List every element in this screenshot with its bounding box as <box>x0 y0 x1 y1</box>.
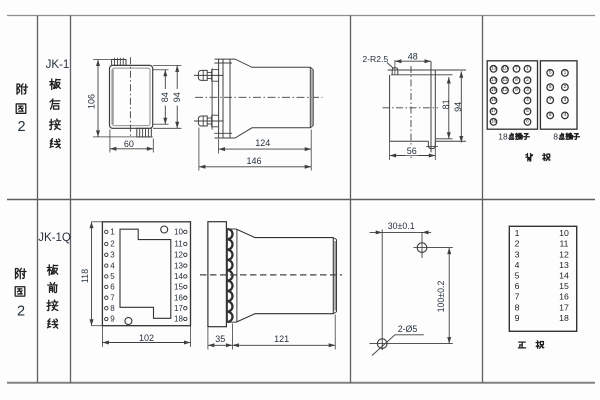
svg-text:13: 13 <box>174 261 183 270</box>
svg-text:9: 9 <box>110 315 115 324</box>
svg-text:10: 10 <box>559 228 569 238</box>
svg-text:5: 5 <box>549 70 552 76</box>
svg-text:94: 94 <box>172 92 182 102</box>
svg-text:9: 9 <box>515 313 520 323</box>
svg-text:7: 7 <box>549 97 552 103</box>
svg-text:15: 15 <box>491 87 497 93</box>
svg-text:84: 84 <box>160 92 170 102</box>
svg-text:4: 4 <box>110 261 115 270</box>
svg-text:118: 118 <box>80 269 90 283</box>
svg-text:35: 35 <box>215 334 225 344</box>
svg-text:5: 5 <box>515 271 520 281</box>
svg-text:13: 13 <box>491 66 497 72</box>
svg-text:14: 14 <box>174 272 183 281</box>
svg-text:100±0.2: 100±0.2 <box>436 281 446 313</box>
svg-text:15: 15 <box>174 283 183 292</box>
svg-text:10: 10 <box>174 228 183 237</box>
svg-text:10: 10 <box>502 66 508 72</box>
svg-text:6: 6 <box>110 283 115 292</box>
svg-text:1: 1 <box>526 66 529 72</box>
svg-text:7: 7 <box>110 293 115 302</box>
svg-text:94: 94 <box>453 102 463 112</box>
svg-text:JK-1: JK-1 <box>46 59 70 71</box>
svg-text:6: 6 <box>515 281 520 291</box>
svg-text:JK-1Q: JK-1Q <box>38 232 71 244</box>
svg-text:124: 124 <box>255 138 270 148</box>
svg-text:2: 2 <box>110 240 115 249</box>
svg-text:2: 2 <box>17 304 25 320</box>
svg-text:6: 6 <box>549 84 552 90</box>
svg-text:4: 4 <box>564 112 567 118</box>
svg-text:16: 16 <box>491 97 497 103</box>
svg-text:30±0.1: 30±0.1 <box>388 221 415 231</box>
svg-text:17: 17 <box>174 304 183 313</box>
svg-text:18: 18 <box>174 315 183 324</box>
svg-text:9: 9 <box>515 87 518 93</box>
svg-text:12: 12 <box>174 251 183 260</box>
svg-text:5: 5 <box>110 272 115 281</box>
svg-text:18: 18 <box>498 132 508 142</box>
svg-text:4: 4 <box>526 97 529 103</box>
svg-text:1: 1 <box>515 228 520 238</box>
svg-text:121: 121 <box>274 334 289 344</box>
svg-text:8: 8 <box>515 77 518 83</box>
svg-text:3: 3 <box>526 87 529 93</box>
svg-text:146: 146 <box>246 156 261 166</box>
svg-text:60: 60 <box>124 139 134 149</box>
svg-text:48: 48 <box>408 51 418 61</box>
svg-text:16: 16 <box>559 292 569 302</box>
svg-text:4: 4 <box>515 260 520 270</box>
svg-text:106: 106 <box>87 94 97 109</box>
svg-text:12: 12 <box>502 87 508 93</box>
svg-text:12: 12 <box>559 250 569 260</box>
svg-text:18: 18 <box>559 313 569 323</box>
svg-text:8: 8 <box>553 132 558 142</box>
svg-text:11: 11 <box>559 239 568 249</box>
svg-text:7: 7 <box>515 292 520 302</box>
svg-text:2-R2.5: 2-R2.5 <box>362 54 388 64</box>
svg-text:3: 3 <box>515 250 520 260</box>
svg-text:2: 2 <box>526 77 529 83</box>
svg-text:5: 5 <box>526 108 529 114</box>
svg-text:2: 2 <box>564 84 567 90</box>
svg-text:13: 13 <box>559 260 569 270</box>
svg-text:14: 14 <box>559 271 569 281</box>
svg-text:18: 18 <box>491 119 497 125</box>
svg-text:1: 1 <box>110 228 115 237</box>
svg-text:17: 17 <box>491 108 497 114</box>
svg-text:11: 11 <box>503 77 508 83</box>
svg-text:56: 56 <box>407 146 417 156</box>
svg-text:1: 1 <box>564 70 567 76</box>
svg-text:3: 3 <box>110 251 115 260</box>
svg-text:17: 17 <box>559 303 569 313</box>
svg-text:3: 3 <box>564 97 567 103</box>
svg-text:7: 7 <box>515 66 518 72</box>
svg-text:16: 16 <box>174 293 183 302</box>
svg-text:8: 8 <box>110 304 115 313</box>
svg-text:2: 2 <box>515 239 520 249</box>
svg-text:15: 15 <box>559 281 569 291</box>
svg-text:11: 11 <box>174 240 183 249</box>
svg-text:2: 2 <box>17 119 25 135</box>
svg-text:14: 14 <box>491 77 497 83</box>
svg-text:102: 102 <box>139 333 154 343</box>
svg-text:6: 6 <box>526 119 529 125</box>
svg-text:8: 8 <box>515 303 520 313</box>
svg-text:81: 81 <box>441 99 451 109</box>
svg-text:8: 8 <box>549 112 552 118</box>
svg-text:2-Ø5: 2-Ø5 <box>398 324 418 334</box>
